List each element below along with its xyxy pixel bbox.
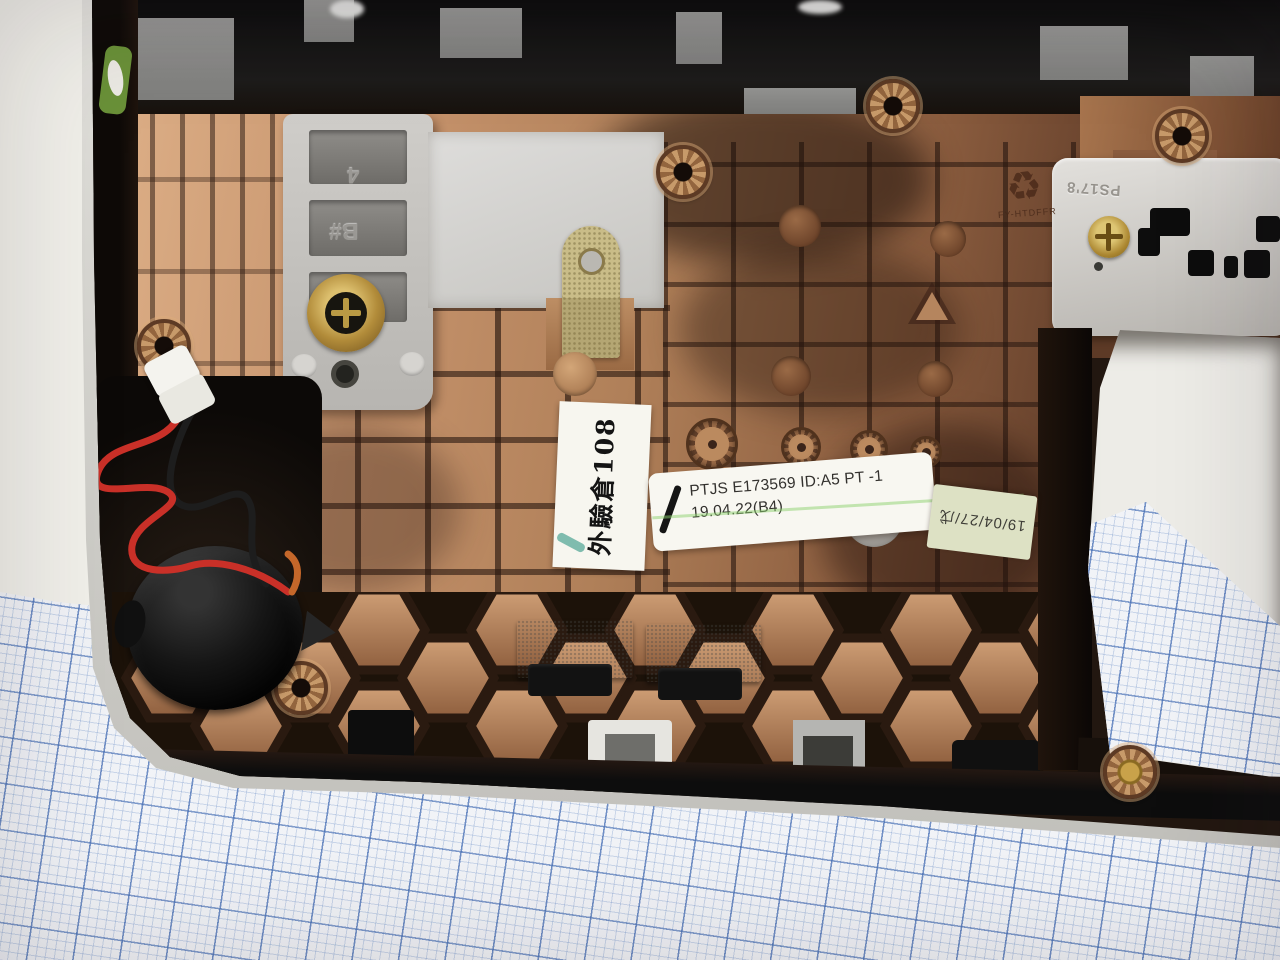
- date-stamp-text: 19/04/27/戊: [937, 506, 1026, 538]
- black-clip: [658, 668, 742, 700]
- screw-standoff-gold: [1103, 745, 1157, 799]
- graph-paper-through-opening: [1076, 330, 1280, 782]
- pen-check-mark: [659, 485, 682, 534]
- photo: PS17'8 4 B#: [0, 0, 1280, 960]
- touchpad-opening: [1076, 330, 1280, 782]
- gray-patch: [744, 88, 856, 114]
- bracket-ear: [399, 352, 425, 376]
- metal-bracket-plate: PS17'8: [1052, 158, 1280, 336]
- gray-patch: [676, 12, 722, 64]
- mold-date-wheel: [686, 418, 738, 470]
- copper-pad: [553, 352, 597, 396]
- date-stamp-sticker: 19/04/27/戊: [926, 484, 1037, 560]
- black-clip: [528, 664, 612, 696]
- bracket-digit-marking: 4: [347, 162, 359, 188]
- copper-pad: [779, 205, 821, 247]
- screw-standoff: [1155, 109, 1209, 163]
- plate-stamp-text: PS17'8: [1065, 178, 1121, 199]
- reflection-spot: [798, 0, 842, 14]
- inspection-sticker-text: 外驗倉108: [581, 416, 623, 557]
- reflection-spot: [330, 0, 364, 18]
- touchpad-opening-wall: [1038, 328, 1092, 770]
- copper-pad: [917, 361, 953, 397]
- gold-screw: [1088, 216, 1130, 258]
- copper-pad: [930, 221, 966, 257]
- plate-cutout: [1138, 228, 1160, 256]
- phillips-screw: [325, 292, 367, 334]
- plate-cutout: [1256, 216, 1280, 242]
- copper-pad: [771, 356, 811, 396]
- screw-standoff: [656, 145, 710, 199]
- alignment-dot: [1094, 262, 1103, 271]
- grounding-tab-hole: [578, 248, 605, 275]
- white-plastic-window: [428, 132, 664, 308]
- plate-cutout: [1188, 250, 1214, 276]
- soot-smudge: [680, 244, 960, 414]
- bracket-code-marking: B#: [329, 218, 358, 245]
- grounding-tab: [562, 226, 620, 358]
- plate-cutout: [1244, 250, 1270, 278]
- gray-patch: [1190, 56, 1254, 98]
- screw-standoff: [866, 79, 920, 133]
- gray-patch: [440, 8, 522, 58]
- recycle-icon: ♻: [1003, 162, 1045, 213]
- plate-cutout: [1224, 256, 1238, 278]
- gray-patch: [1040, 26, 1128, 80]
